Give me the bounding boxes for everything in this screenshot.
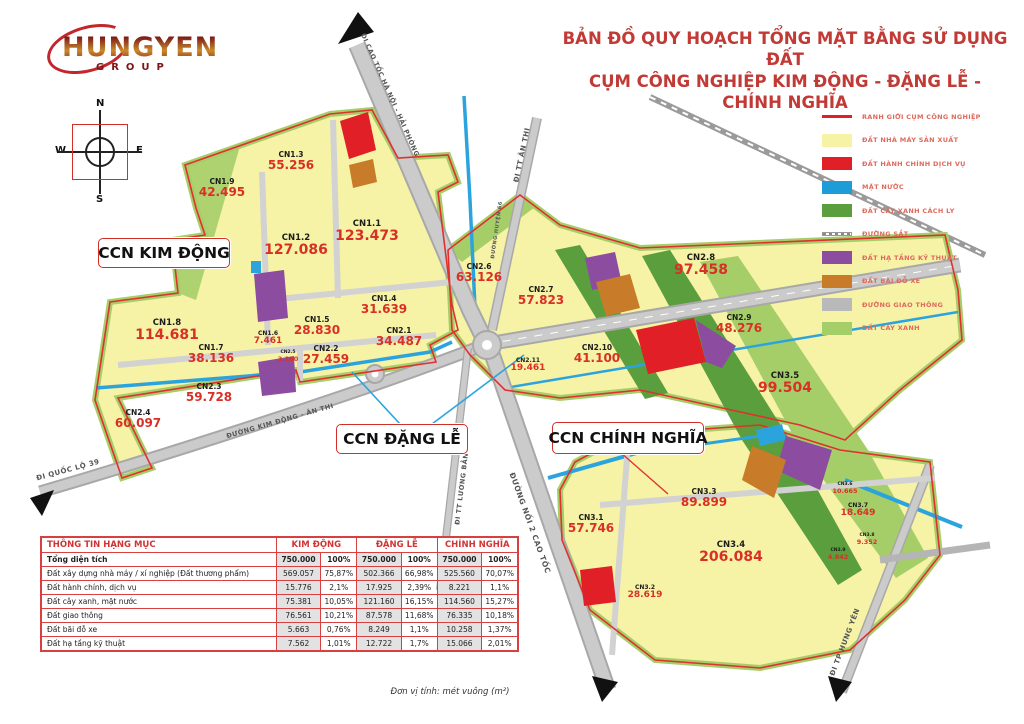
- area-value-cell: 502.366: [357, 567, 402, 581]
- parcel-area-value: 38.136: [188, 352, 234, 365]
- parcel-label-CN2.1: CN2.134.487: [376, 327, 422, 347]
- parcel-label-CN3.2: CN3.228.619: [628, 585, 663, 601]
- legend-item: ĐẤT CÂY XANH CÁCH LY: [822, 204, 1017, 217]
- legend-item: ĐẤT HẠ TẦNG KỸ THUẬT: [822, 251, 1017, 264]
- logo-brand-text: HUNGYEN: [62, 32, 218, 63]
- company-logo: HUNGYEN GROUP: [44, 24, 204, 82]
- legend-label: ĐẤT CÂY XANH CÁCH LY: [862, 207, 955, 215]
- area-value-cell: 17.925: [357, 581, 402, 595]
- legend-label: MẶT NƯỚC: [862, 183, 904, 191]
- area-value-cell: 87.578: [357, 609, 402, 623]
- parcel-label-CN2.8: CN2.897.458: [674, 254, 728, 278]
- parcel-label-CN2.5: CN2.53.180: [278, 351, 299, 363]
- parcel-label-CN1.7: CN1.738.136: [188, 344, 234, 364]
- percent-cell: 100%: [321, 553, 357, 567]
- area-value-cell: 75.381: [276, 595, 321, 609]
- legend-label: ĐẤT HẠ TẦNG KỸ THUẬT: [862, 254, 957, 262]
- row-label: Đất bãi đỗ xe: [41, 623, 276, 637]
- parcel-area-value: 123.473: [335, 229, 399, 244]
- row-label: Đất giao thông: [41, 609, 276, 623]
- area-value-cell: 15.776: [276, 581, 321, 595]
- parcel-label-CN1.6: CN1.67.461: [254, 331, 282, 347]
- row-label: Đất xây dựng nhà máy / xí nghiệp (Đất th…: [41, 567, 276, 581]
- parcel-area-value: 97.458: [674, 263, 728, 278]
- parcel-area-value: 99.504: [758, 381, 812, 396]
- legend-item: ĐƯỜNG GIAO THÔNG: [822, 298, 1017, 311]
- table-row: Đất cây xanh, mặt nước75.38110,05%121.16…: [41, 595, 518, 609]
- row-label: Đất hành chính, dịch vụ: [41, 581, 276, 595]
- parcel-label-CN1.9: CN1.942.495: [199, 178, 245, 198]
- parcel-label-CN3.7: CN3.718.649: [841, 503, 876, 519]
- parcel-area-value: 114.681: [135, 328, 199, 343]
- parcel-label-CN2.2: CN2.227.459: [303, 345, 349, 365]
- area-value-cell: 10.258: [437, 623, 482, 637]
- percent-cell: 70,07%: [482, 567, 518, 581]
- land-use-statistics-table: THÔNG TIN HẠNG MỤCKIM ĐỘNGĐẶNG LỄCHÍNH N…: [40, 536, 519, 652]
- parcel-area-value: 41.100: [574, 352, 620, 365]
- parcel-label-CN3.1: CN3.157.746: [568, 514, 614, 534]
- legend-label: ĐƯỜNG GIAO THÔNG: [862, 301, 943, 309]
- logo-sub-text: GROUP: [96, 62, 171, 73]
- legend-item: ĐƯỜNG SẮT: [822, 228, 1017, 241]
- row-label: Đất hạ tầng kỹ thuật: [41, 637, 276, 652]
- parcel-area-value: 34.487: [376, 335, 422, 348]
- parcel-area-value: 4.842: [828, 554, 849, 561]
- percent-cell: 10,21%: [321, 609, 357, 623]
- parcel-label-CN3.8: CN3.89.352: [857, 534, 878, 546]
- parcel-area-value: 19.461: [511, 364, 546, 373]
- area-value-cell: 76.335: [437, 609, 482, 623]
- parcel-label-CN2.7: CN2.757.823: [518, 286, 564, 306]
- row-label: Tổng diện tích: [41, 553, 276, 567]
- parcel-label-CN3.4: CN3.4206.084: [699, 541, 763, 565]
- parcel-area-value: 57.746: [568, 522, 614, 535]
- parcel-area-value: 48.276: [716, 322, 762, 335]
- legend: RANH GIỚI CỤM CÔNG NGHIỆPĐẤT NHÀ MÁY SẢN…: [822, 110, 1017, 335]
- parcel-label-CN3.6: CN3.610.665: [832, 483, 857, 495]
- parcel-label-CN1.1: CN1.1123.473: [335, 220, 399, 244]
- percent-cell: 100%: [482, 553, 518, 567]
- legend-swatch: [822, 275, 852, 288]
- percent-cell: 10,18%: [482, 609, 518, 623]
- percent-cell: 1,1%: [482, 581, 518, 595]
- parcel-area-value: 89.899: [681, 496, 727, 509]
- table-row: Đất xây dựng nhà máy / xí nghiệp (Đất th…: [41, 567, 518, 581]
- table-header-group: KIM ĐỘNG: [276, 537, 356, 553]
- percent-cell: 1,01%: [321, 637, 357, 652]
- parcel-area-value: 206.084: [699, 550, 763, 565]
- area-value-cell: 76.561: [276, 609, 321, 623]
- percent-cell: 15,27%: [482, 595, 518, 609]
- legend-swatch: [822, 157, 852, 170]
- parcel-label-CN1.8: CN1.8114.681: [135, 319, 199, 343]
- cluster-label-box: CCN ĐẶNG LỄ: [336, 424, 468, 454]
- area-value-cell: 121.160: [357, 595, 402, 609]
- legend-label: ĐƯỜNG SẮT: [862, 230, 908, 238]
- area-value-cell: 8.249: [357, 623, 402, 637]
- compass-rose: N S E W: [56, 106, 144, 206]
- legend-label: RANH GIỚI CỤM CÔNG NGHIỆP: [862, 113, 981, 121]
- legend-swatch: [822, 134, 852, 147]
- parcel-label-CN2.11: CN2.1119.461: [511, 358, 546, 374]
- parcel-label-CN2.10: CN2.1041.100: [574, 344, 620, 364]
- area-value-cell: 8.221: [437, 581, 482, 595]
- compass-south-label: S: [96, 194, 103, 205]
- legend-item: RANH GIỚI CỤM CÔNG NGHIỆP: [822, 110, 1017, 123]
- parcel-area-value: 9.352: [857, 539, 878, 546]
- area-value-cell: 114.560: [437, 595, 482, 609]
- map-title-line1: BẢN ĐỒ QUY HOẠCH TỔNG MẶT BẰNG SỬ DỤNG Đ…: [560, 28, 1010, 71]
- percent-cell: 75,87%: [321, 567, 357, 581]
- legend-item: ĐẤT NHÀ MÁY SẢN XUẤT: [822, 134, 1017, 147]
- parcel-area-value: 63.126: [456, 271, 502, 284]
- parcel-label-CN2.4: CN2.460.097: [115, 409, 161, 429]
- parcel-label-CN1.3: CN1.355.256: [268, 151, 314, 171]
- table-row: Đất bãi đỗ xe5.6630,76%8.2491,1%10.2581,…: [41, 623, 518, 637]
- legend-swatch: [822, 298, 852, 311]
- legend-swatch: [822, 204, 852, 217]
- area-value-cell: 750.000: [437, 553, 482, 567]
- parcel-area-value: 42.495: [199, 186, 245, 199]
- percent-cell: 10,05%: [321, 595, 357, 609]
- parcel-area-value: 28.830: [294, 324, 340, 337]
- percent-cell: 1,7%: [401, 637, 437, 652]
- parcel-area-value: 59.728: [186, 391, 232, 404]
- legend-label: ĐẤT HÀNH CHÍNH DỊCH VỤ: [862, 160, 966, 168]
- compass-circle: [85, 137, 115, 167]
- parcel-label-CN2.3: CN2.359.728: [186, 383, 232, 403]
- parcel-area-value: 3.180: [278, 356, 299, 363]
- parcel-area-value: 10.665: [832, 488, 857, 495]
- area-value-cell: 569.057: [276, 567, 321, 581]
- table-row: Đất hạ tầng kỹ thuật7.5621,01%12.7221,7%…: [41, 637, 518, 652]
- area-value-cell: 750.000: [276, 553, 321, 567]
- area-value-cell: 12.722: [357, 637, 402, 652]
- legend-item: ĐẤT BÃI ĐỖ XE: [822, 275, 1017, 288]
- parcel-area-value: 28.619: [628, 591, 663, 600]
- legend-item: ĐẤT HÀNH CHÍNH DỊCH VỤ: [822, 157, 1017, 170]
- table-row: Tổng diện tích750.000100%750.000100%750.…: [41, 553, 518, 567]
- legend-swatch: [822, 181, 852, 194]
- cluster-label-box: CCN KIM ĐỘNG: [98, 238, 230, 268]
- percent-cell: 1,37%: [482, 623, 518, 637]
- parcel-label-CN3.5: CN3.599.504: [758, 372, 812, 396]
- parcel-label-CN1.4: CN1.431.639: [361, 295, 407, 315]
- legend-label: ĐẤT BÃI ĐỖ XE: [862, 277, 920, 285]
- percent-cell: 2,39%: [401, 581, 437, 595]
- parcel-label-CN2.9: CN2.948.276: [716, 314, 762, 334]
- table-header-items: THÔNG TIN HẠNG MỤC: [41, 537, 276, 553]
- table-header-group: ĐẶNG LỄ: [357, 537, 437, 553]
- table-header-row: THÔNG TIN HẠNG MỤCKIM ĐỘNGĐẶNG LỄCHÍNH N…: [41, 537, 518, 553]
- parcel-label-CN1.2: CN1.2127.086: [264, 234, 328, 258]
- percent-cell: 100%: [401, 553, 437, 567]
- unit-note: Đơn vị tính: mét vuông (m²): [355, 687, 545, 697]
- area-value-cell: 750.000: [357, 553, 402, 567]
- parcel-label-CN2.6: CN2.663.126: [456, 263, 502, 283]
- parcel-area-value: 18.649: [841, 509, 876, 518]
- parcel-area-value: 7.461: [254, 337, 282, 346]
- area-value-cell: 525.560: [437, 567, 482, 581]
- parcel-area-value: 55.256: [268, 159, 314, 172]
- parcel-area-value: 31.639: [361, 303, 407, 316]
- percent-cell: 11,68%: [401, 609, 437, 623]
- legend-swatch: [822, 251, 852, 264]
- percent-cell: 1,1%: [401, 623, 437, 637]
- percent-cell: 16,15%: [401, 595, 437, 609]
- table-header-group: CHÍNH NGHĨA: [437, 537, 518, 553]
- percent-cell: 2,1%: [321, 581, 357, 595]
- legend-label: ĐẤT CÂY XANH: [862, 324, 920, 332]
- legend-swatch: [822, 232, 852, 236]
- legend-label: ĐẤT NHÀ MÁY SẢN XUẤT: [862, 136, 958, 144]
- parcel-label-CN1.5: CN1.528.830: [294, 316, 340, 336]
- legend-item: ĐẤT CÂY XANH: [822, 322, 1017, 335]
- map-title-line2: CỤM CÔNG NGHIỆP KIM ĐỘNG - ĐẶNG LỄ - CHÍ…: [560, 71, 1010, 114]
- table-row: Đất giao thông76.56110,21%87.57811,68%76…: [41, 609, 518, 623]
- compass-north-label: N: [96, 98, 104, 109]
- map-title: BẢN ĐỒ QUY HOẠCH TỔNG MẶT BẰNG SỬ DỤNG Đ…: [560, 28, 1010, 114]
- legend-item: MẶT NƯỚC: [822, 181, 1017, 194]
- legend-swatch: [822, 322, 852, 335]
- area-value-cell: 5.663: [276, 623, 321, 637]
- planning-map-poster: HUNGYEN GROUP BẢN ĐỒ QUY HOẠCH TỔNG MẶT …: [0, 0, 1024, 724]
- area-value-cell: 15.066: [437, 637, 482, 652]
- percent-cell: 0,76%: [321, 623, 357, 637]
- parcel-area-value: 127.086: [264, 243, 328, 258]
- percent-cell: 2,01%: [482, 637, 518, 652]
- parcel-area-value: 27.459: [303, 353, 349, 366]
- parcel-area-value: 60.097: [115, 417, 161, 430]
- parcel-label-CN3.3: CN3.389.899: [681, 488, 727, 508]
- row-label: Đất cây xanh, mặt nước: [41, 595, 276, 609]
- legend-swatch: [822, 115, 852, 118]
- parcel-label-CN3.9: CN3.94.842: [828, 549, 849, 561]
- parcel-area-value: 57.823: [518, 294, 564, 307]
- cluster-label-box: CCN CHÍNH NGHĨA: [552, 422, 704, 454]
- percent-cell: 66,98%: [401, 567, 437, 581]
- table-row: Đất hành chính, dịch vụ15.7762,1%17.9252…: [41, 581, 518, 595]
- area-value-cell: 7.562: [276, 637, 321, 652]
